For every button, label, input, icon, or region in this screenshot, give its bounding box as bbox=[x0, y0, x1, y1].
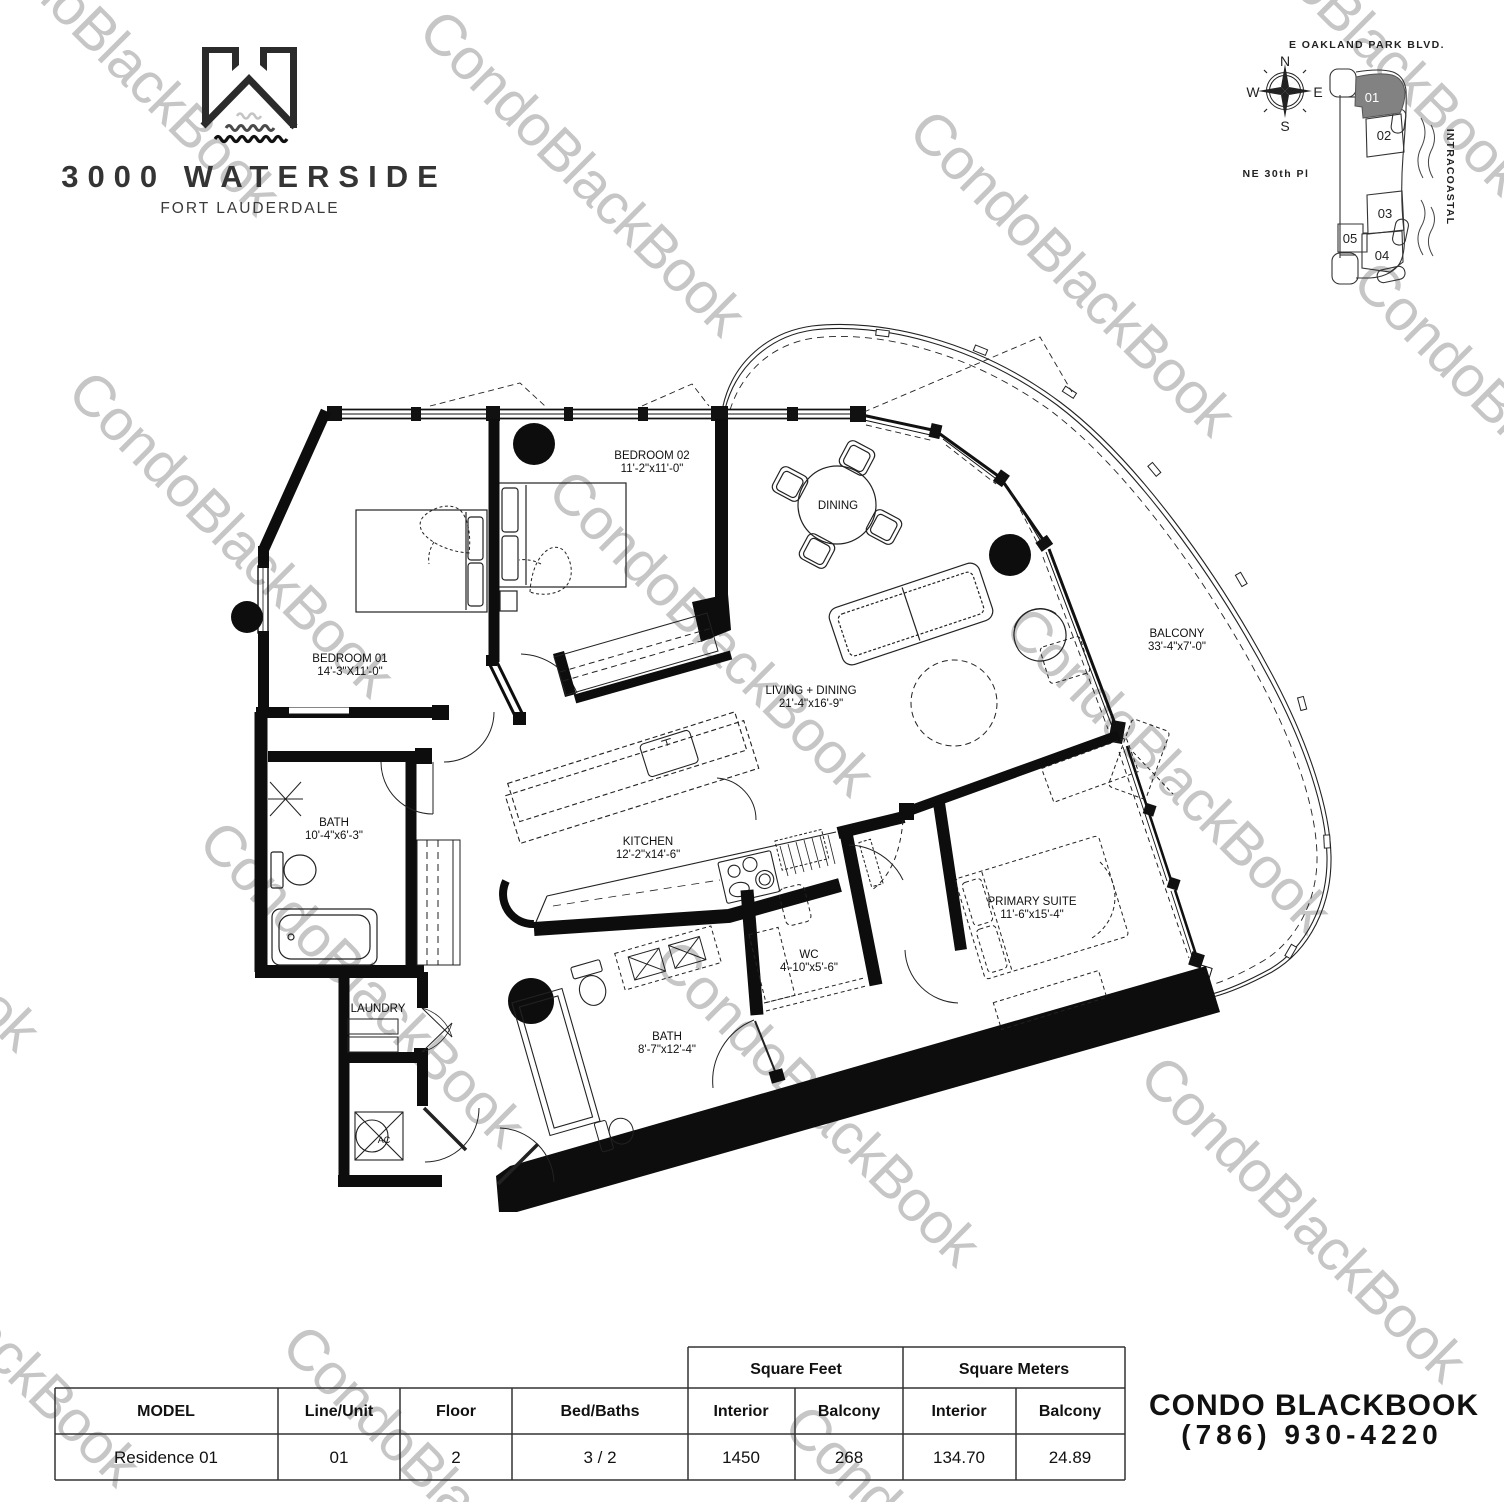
svg-text:4'-10"x5'-6": 4'-10"x5'-6" bbox=[780, 962, 838, 974]
svg-text:BEDROOM 01: BEDROOM 01 bbox=[312, 653, 387, 665]
svg-text:Residence 01: Residence 01 bbox=[114, 1448, 218, 1467]
svg-text:WC: WC bbox=[799, 949, 818, 961]
svg-text:Balcony: Balcony bbox=[1039, 1403, 1101, 1420]
svg-text:3000 WATERSIDE: 3000 WATERSIDE bbox=[61, 159, 447, 194]
svg-text:N: N bbox=[1280, 53, 1290, 69]
svg-text:Square Feet: Square Feet bbox=[750, 1361, 842, 1378]
svg-text:12'-2"x14'-6": 12'-2"x14'-6" bbox=[616, 849, 680, 861]
svg-text:14'-3"X11'-0": 14'-3"X11'-0" bbox=[317, 666, 382, 678]
svg-text:2: 2 bbox=[451, 1448, 460, 1467]
svg-text:BALCONY: BALCONY bbox=[1150, 628, 1205, 640]
svg-text:CONDO BLACKBOOK: CONDO BLACKBOOK bbox=[1149, 1389, 1479, 1422]
svg-text:Interior: Interior bbox=[713, 1403, 768, 1420]
svg-text:MODEL: MODEL bbox=[137, 1403, 195, 1420]
svg-text:Balcony: Balcony bbox=[818, 1403, 880, 1420]
svg-text:03: 03 bbox=[1378, 206, 1392, 221]
svg-text:S: S bbox=[1280, 118, 1289, 134]
svg-text:Bed/Baths: Bed/Baths bbox=[560, 1403, 639, 1420]
svg-text:NE 30th Pl: NE 30th Pl bbox=[1243, 168, 1310, 180]
svg-text:8'-7"x12'-4": 8'-7"x12'-4" bbox=[638, 1044, 696, 1056]
svg-text:FORT LAUDERDALE: FORT LAUDERDALE bbox=[160, 200, 339, 217]
svg-text:02: 02 bbox=[1377, 128, 1391, 143]
svg-text:LAUNDRY: LAUNDRY bbox=[351, 1003, 406, 1015]
svg-text:21'-4"x16'-9": 21'-4"x16'-9" bbox=[779, 698, 843, 710]
svg-text:11'-2"x11'-0": 11'-2"x11'-0" bbox=[621, 463, 684, 475]
svg-text:268: 268 bbox=[835, 1448, 863, 1467]
svg-text:W: W bbox=[1246, 84, 1260, 100]
svg-text:Square Meters: Square Meters bbox=[959, 1361, 1069, 1378]
svg-text:LIVING + DINING: LIVING + DINING bbox=[765, 685, 856, 697]
svg-text:134.70: 134.70 bbox=[933, 1448, 985, 1467]
svg-text:Interior: Interior bbox=[931, 1403, 986, 1420]
svg-text:10'-4"x6'-3": 10'-4"x6'-3" bbox=[305, 830, 363, 842]
svg-text:01: 01 bbox=[1365, 90, 1379, 105]
svg-text:BATH: BATH bbox=[652, 1031, 682, 1043]
svg-text:E: E bbox=[1313, 84, 1322, 100]
svg-text:(786) 930-4220: (786) 930-4220 bbox=[1181, 1419, 1442, 1450]
svg-text:1450: 1450 bbox=[722, 1448, 760, 1467]
svg-text:BATH: BATH bbox=[319, 817, 349, 829]
svg-text:05: 05 bbox=[1343, 231, 1357, 246]
svg-text:KITCHEN: KITCHEN bbox=[623, 836, 673, 848]
svg-text:01: 01 bbox=[330, 1448, 349, 1467]
svg-text:04: 04 bbox=[1375, 248, 1389, 263]
svg-text:33'-4"x7'-0": 33'-4"x7'-0" bbox=[1148, 641, 1206, 653]
svg-text:BEDROOM 02: BEDROOM 02 bbox=[614, 450, 689, 462]
svg-text:11'-6"x15'-4": 11'-6"x15'-4" bbox=[1000, 909, 1064, 921]
svg-text:3 / 2: 3 / 2 bbox=[583, 1448, 616, 1467]
svg-text:E OAKLAND PARK BLVD.: E OAKLAND PARK BLVD. bbox=[1289, 39, 1445, 51]
svg-text:Floor: Floor bbox=[436, 1403, 476, 1420]
svg-text:DINING: DINING bbox=[818, 500, 858, 512]
svg-text:INTRACOASTAL: INTRACOASTAL bbox=[1444, 129, 1456, 225]
svg-text:Line/Unit: Line/Unit bbox=[305, 1403, 374, 1420]
svg-text:24.89: 24.89 bbox=[1049, 1448, 1092, 1467]
svg-text:PRIMARY SUITE: PRIMARY SUITE bbox=[987, 896, 1076, 908]
svg-text:AC: AC bbox=[378, 1135, 391, 1145]
